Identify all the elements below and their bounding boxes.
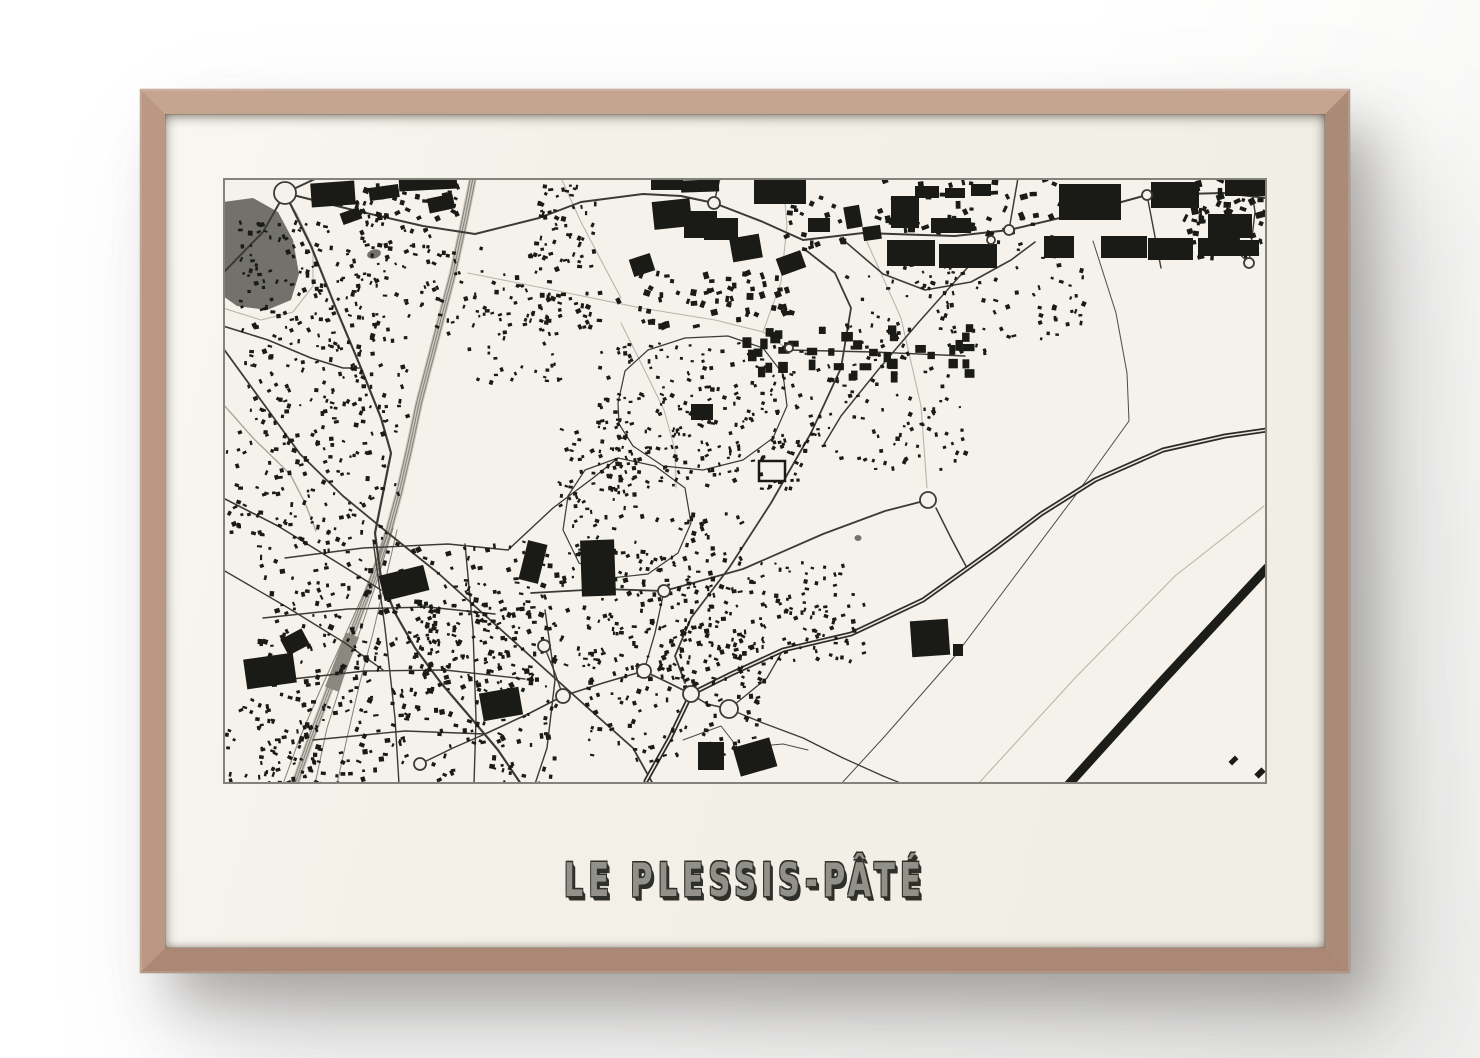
poster-title: LE PLESSIS-PÂTÉ [362, 854, 1128, 906]
picture-frame: LE PLESSIS-PÂTÉ [140, 89, 1350, 973]
photo-background: LE PLESSIS-PÂTÉ [0, 0, 1480, 1058]
map-canvas [223, 178, 1267, 784]
poster-mat: LE PLESSIS-PÂTÉ [165, 114, 1325, 948]
city-map [223, 178, 1267, 784]
